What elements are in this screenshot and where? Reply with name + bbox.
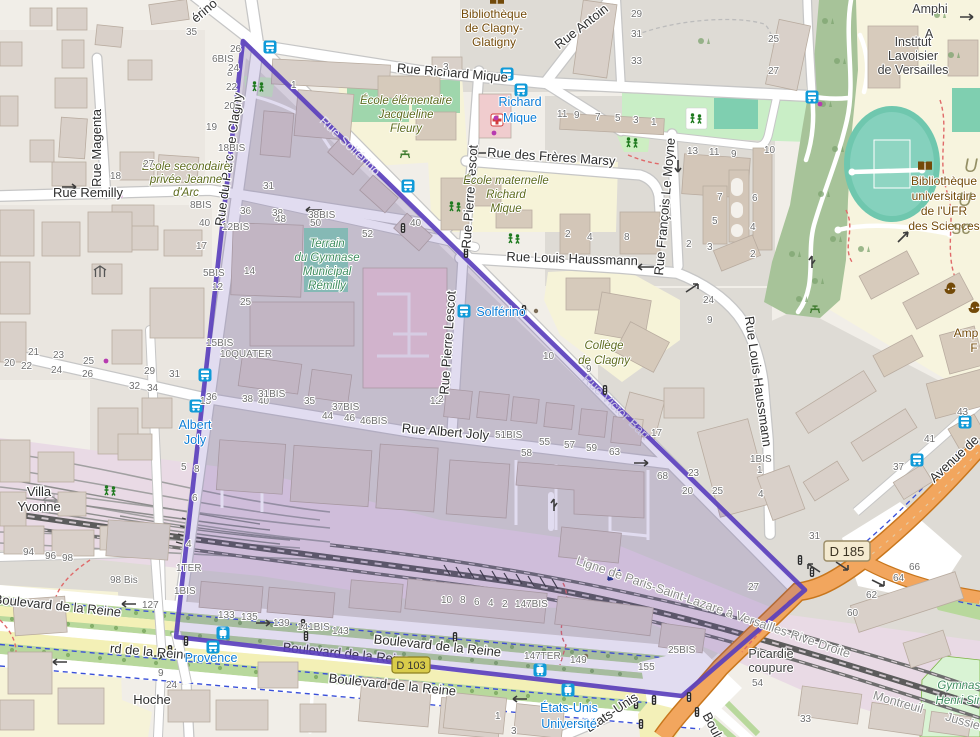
svg-text:96: 96 <box>45 551 57 562</box>
svg-text:31: 31 <box>169 369 181 380</box>
svg-text:14: 14 <box>244 266 256 277</box>
svg-text:États-Unis: États-Unis <box>540 700 598 715</box>
svg-text:17: 17 <box>651 428 663 439</box>
svg-text:25: 25 <box>83 356 95 367</box>
svg-text:24: 24 <box>703 295 715 306</box>
svg-text:4: 4 <box>488 598 494 609</box>
svg-text:12BIS: 12BIS <box>222 222 250 233</box>
svg-text:du Gymnase: du Gymnase <box>294 252 359 264</box>
svg-text:32: 32 <box>129 381 141 392</box>
svg-text:12: 12 <box>212 282 224 293</box>
svg-text:63: 63 <box>609 447 621 458</box>
svg-text:143: 143 <box>332 626 349 637</box>
svg-text:10: 10 <box>764 145 776 156</box>
svg-text:57: 57 <box>564 440 576 451</box>
svg-text:9: 9 <box>586 364 592 375</box>
svg-text:36: 36 <box>240 206 252 217</box>
svg-text:5: 5 <box>712 216 718 227</box>
svg-text:2: 2 <box>565 229 571 240</box>
svg-text:54: 54 <box>752 678 764 689</box>
svg-text:11: 11 <box>709 147 720 158</box>
svg-text:35: 35 <box>186 27 198 38</box>
svg-text:9: 9 <box>731 149 737 160</box>
svg-text:40: 40 <box>410 218 422 229</box>
svg-text:Mique: Mique <box>503 111 537 125</box>
svg-text:31: 31 <box>263 181 275 192</box>
svg-text:4: 4 <box>758 489 764 500</box>
svg-text:66: 66 <box>909 562 921 573</box>
svg-text:privée Jeanne: privée Jeanne <box>149 174 222 186</box>
svg-text:31BIS: 31BIS <box>258 389 286 400</box>
svg-text:Terrain: Terrain <box>309 238 344 250</box>
svg-text:94: 94 <box>23 547 35 558</box>
svg-text:25: 25 <box>712 486 724 497</box>
svg-text:5: 5 <box>181 462 187 473</box>
svg-text:Lavoisier: Lavoisier <box>888 49 938 63</box>
svg-text:1BIS: 1BIS <box>174 586 196 597</box>
svg-text:7: 7 <box>595 112 601 123</box>
svg-text:Rémilly: Rémilly <box>308 280 347 292</box>
svg-text:1: 1 <box>495 711 501 722</box>
svg-text:Richard: Richard <box>486 189 526 201</box>
svg-text:20: 20 <box>682 486 694 497</box>
svg-text:62: 62 <box>866 590 878 601</box>
svg-text:52: 52 <box>362 229 374 240</box>
svg-text:27: 27 <box>768 66 780 77</box>
svg-text:1: 1 <box>757 465 763 476</box>
svg-text:1: 1 <box>291 80 297 91</box>
svg-text:5: 5 <box>615 113 621 124</box>
svg-text:8: 8 <box>460 595 466 606</box>
svg-text:8: 8 <box>194 464 200 475</box>
svg-text:Glatigny: Glatigny <box>472 35 516 49</box>
svg-text:31: 31 <box>631 29 643 40</box>
svg-text:38: 38 <box>242 394 254 405</box>
svg-text:U: U <box>958 190 972 211</box>
svg-text:5BIS: 5BIS <box>203 268 225 279</box>
svg-text:37BIS: 37BIS <box>332 402 360 413</box>
svg-text:Gymnase: Gymnase <box>937 680 980 692</box>
svg-text:22: 22 <box>226 82 238 93</box>
svg-text:Hoche: Hoche <box>133 692 171 707</box>
svg-text:20: 20 <box>224 101 236 112</box>
svg-text:de Clagny-: de Clagny- <box>465 21 523 35</box>
svg-text:19: 19 <box>206 122 218 133</box>
svg-text:D 185: D 185 <box>830 544 865 559</box>
svg-text:Municipal: Municipal <box>303 266 352 278</box>
svg-text:25: 25 <box>240 297 252 308</box>
svg-text:A: A <box>925 27 934 41</box>
svg-text:9: 9 <box>158 668 164 679</box>
svg-text:2: 2 <box>438 394 444 405</box>
svg-text:60: 60 <box>847 608 859 619</box>
svg-text:9: 9 <box>707 315 713 326</box>
svg-text:8: 8 <box>624 232 630 243</box>
svg-text:147TER: 147TER <box>524 651 561 662</box>
svg-text:98 Bis: 98 Bis <box>110 575 138 586</box>
svg-text:Jacqueline: Jacqueline <box>378 109 434 121</box>
svg-text:139: 139 <box>273 618 290 629</box>
svg-text:48: 48 <box>275 214 287 225</box>
svg-text:50: 50 <box>310 218 322 229</box>
svg-text:24: 24 <box>228 63 240 74</box>
svg-text:22: 22 <box>21 361 33 372</box>
svg-text:23: 23 <box>688 468 700 479</box>
svg-text:46BIS: 46BIS <box>360 416 388 427</box>
svg-text:25BIS: 25BIS <box>668 645 696 656</box>
svg-text:25: 25 <box>768 34 780 45</box>
svg-text:141BIS: 141BIS <box>297 622 330 633</box>
svg-text:8BIS: 8BIS <box>190 200 212 211</box>
svg-text:Université: Université <box>541 717 597 731</box>
svg-text:29: 29 <box>631 9 643 20</box>
svg-text:155: 155 <box>638 662 655 673</box>
svg-text:21: 21 <box>28 347 40 358</box>
svg-text:Provence: Provence <box>185 651 238 665</box>
svg-text:Fleury: Fleury <box>390 123 423 135</box>
svg-text:68: 68 <box>657 471 669 482</box>
svg-text:sc: sc <box>952 218 972 239</box>
svg-text:1TER: 1TER <box>176 563 202 574</box>
svg-text:Rue Magenta: Rue Magenta <box>89 108 104 187</box>
svg-text:13: 13 <box>687 146 699 157</box>
svg-text:1: 1 <box>651 117 657 128</box>
svg-text:3: 3 <box>443 62 449 73</box>
svg-text:147BIS: 147BIS <box>515 599 548 610</box>
svg-text:58: 58 <box>521 448 533 459</box>
svg-text:26: 26 <box>82 369 94 380</box>
svg-text:7: 7 <box>717 192 723 203</box>
svg-text:33: 33 <box>631 56 643 67</box>
svg-text:Henri Simo: Henri Simo <box>936 695 980 707</box>
svg-text:École secondaire: École secondaire <box>142 160 230 173</box>
svg-text:Amp: Amp <box>954 326 979 340</box>
svg-text:40: 40 <box>199 218 211 229</box>
svg-text:20: 20 <box>4 358 16 369</box>
svg-text:6: 6 <box>474 597 480 608</box>
svg-text:24: 24 <box>166 680 178 691</box>
svg-text:Bibliothèque: Bibliothèque <box>461 7 527 21</box>
svg-text:4: 4 <box>750 222 756 233</box>
svg-text:41: 41 <box>924 434 936 445</box>
svg-text:127: 127 <box>142 600 159 611</box>
svg-text:10: 10 <box>543 351 555 362</box>
svg-text:3: 3 <box>633 115 639 126</box>
svg-text:36: 36 <box>206 392 218 403</box>
svg-text:133: 133 <box>218 610 235 621</box>
svg-text:18: 18 <box>110 171 122 182</box>
svg-text:Richard: Richard <box>498 95 541 109</box>
svg-text:3: 3 <box>707 242 713 253</box>
svg-text:6: 6 <box>192 493 198 504</box>
svg-text:64: 64 <box>893 573 905 584</box>
svg-text:Solférino: Solférino <box>476 305 525 319</box>
svg-text:de Versailles: de Versailles <box>878 63 949 77</box>
svg-text:Mique: Mique <box>490 203 521 215</box>
svg-text:11: 11 <box>557 109 568 120</box>
svg-text:55: 55 <box>539 437 551 448</box>
svg-text:31: 31 <box>809 531 821 542</box>
svg-text:Amphi: Amphi <box>912 2 947 16</box>
svg-text:d'Arc: d'Arc <box>173 187 199 199</box>
svg-text:23: 23 <box>53 350 65 361</box>
svg-text:27: 27 <box>143 159 155 170</box>
svg-text:Collège: Collège <box>585 340 624 352</box>
svg-text:33: 33 <box>800 714 812 725</box>
svg-text:4: 4 <box>186 539 192 550</box>
svg-text:2: 2 <box>686 239 692 250</box>
svg-text:46: 46 <box>344 413 356 424</box>
svg-text:17: 17 <box>196 241 208 252</box>
svg-text:26: 26 <box>230 44 242 55</box>
svg-text:27: 27 <box>748 582 760 593</box>
svg-text:D 103: D 103 <box>396 660 425 672</box>
svg-text:24: 24 <box>51 365 63 376</box>
svg-text:Yvonne: Yvonne <box>17 499 60 514</box>
svg-text:37: 37 <box>893 462 905 473</box>
svg-text:149: 149 <box>570 655 587 666</box>
svg-text:59: 59 <box>586 443 598 454</box>
svg-text:6: 6 <box>752 193 758 204</box>
svg-text:10QUATER: 10QUATER <box>220 349 272 360</box>
svg-text:École élémentaire: École élémentaire <box>360 94 452 107</box>
svg-text:44: 44 <box>322 411 334 422</box>
svg-text:École maternelle: École maternelle <box>463 174 549 187</box>
svg-text:51BIS: 51BIS <box>495 430 523 441</box>
svg-text:2: 2 <box>502 599 508 610</box>
svg-text:Picardie: Picardie <box>748 647 793 661</box>
svg-text:Albert: Albert <box>179 418 212 432</box>
svg-text:34: 34 <box>147 383 159 394</box>
svg-text:98: 98 <box>62 553 74 564</box>
svg-text:Joly: Joly <box>184 433 207 447</box>
svg-text:3: 3 <box>511 726 517 737</box>
svg-text:9: 9 <box>574 110 580 121</box>
svg-text:F: F <box>970 341 977 355</box>
svg-text:135: 135 <box>241 612 258 623</box>
svg-text:15BIS: 15BIS <box>206 338 234 349</box>
svg-text:Villa: Villa <box>27 484 52 499</box>
svg-text:35: 35 <box>304 396 316 407</box>
svg-text:U: U <box>964 156 978 177</box>
svg-text:43: 43 <box>957 407 969 418</box>
svg-text:coupure: coupure <box>748 661 793 675</box>
svg-text:4: 4 <box>587 232 593 243</box>
svg-text:18BIS: 18BIS <box>218 143 246 154</box>
svg-text:2: 2 <box>750 249 756 260</box>
svg-text:10: 10 <box>441 595 453 606</box>
svg-text:29: 29 <box>144 366 156 377</box>
svg-text:1BIS: 1BIS <box>750 454 772 465</box>
